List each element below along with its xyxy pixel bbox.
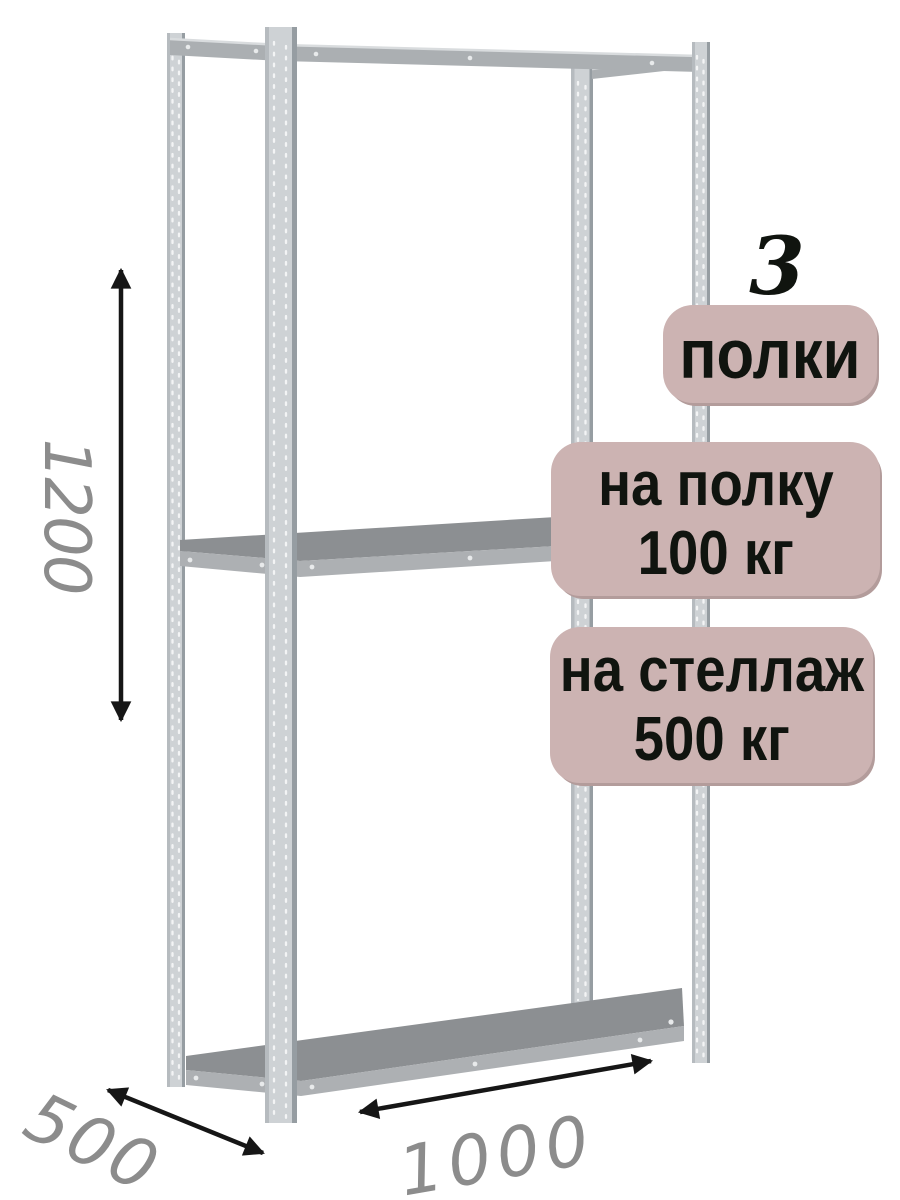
middle-shelf [180, 517, 556, 577]
post-front-left [265, 27, 297, 1123]
shelf-count-badge: полки [663, 305, 877, 403]
shelf-load-line2: 100 кг [637, 519, 793, 588]
top-shelf [170, 39, 700, 72]
product-image: 1200 500 1000 3 полки на полку 100 кг на… [0, 0, 900, 1200]
shelf-load-badge: на полку 100 кг [551, 442, 880, 596]
shelf-count-badge-label: полки [679, 315, 860, 393]
rack-load-line1: на стеллаж [559, 636, 863, 705]
rack-load-badge: на стеллаж 500 кг [550, 627, 873, 783]
height-dimension-label: 1200 [34, 439, 98, 594]
bottom-shelf [186, 988, 684, 1096]
shelf-load-line1: на полку [598, 450, 834, 519]
rack-load-line2: 500 кг [633, 705, 789, 774]
shelving-rack-illustration [0, 0, 900, 1200]
shelf-count: 3 [744, 226, 810, 306]
